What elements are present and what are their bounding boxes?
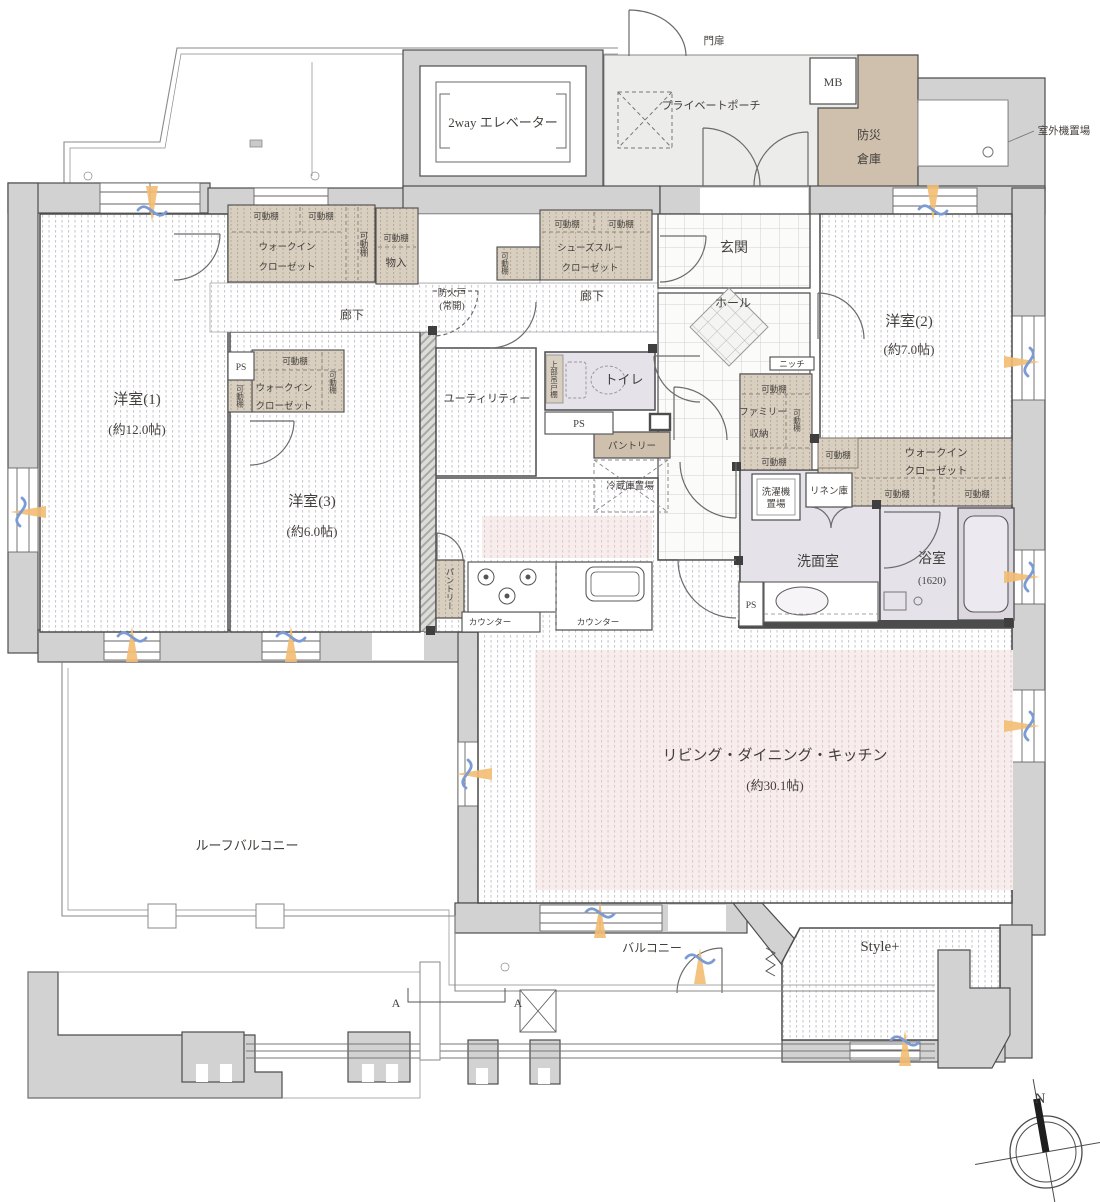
balcony-label: バルコニー	[622, 941, 682, 955]
bath-label: 浴室	[918, 550, 946, 567]
kitchen-pink-zone	[482, 516, 652, 558]
counter-label-2: カウンター	[577, 617, 620, 627]
genkan-label: 玄関	[720, 239, 748, 256]
ps-label-3: PS	[746, 601, 757, 611]
bedroom2-size: (約7.0帖)	[884, 342, 935, 357]
washroom-label: 洗面室	[797, 553, 839, 570]
stove	[468, 562, 556, 612]
wic1-label-1: ウォークイン	[258, 242, 315, 253]
upper-cabinet-label: 上部吊戸棚	[549, 360, 558, 399]
mb-label: MB	[824, 75, 843, 89]
hall-label: ホール	[715, 296, 751, 310]
shelf-label: 可動棚	[884, 489, 910, 499]
family-label-1: ファミリー	[739, 408, 787, 418]
fridge-label: 冷蔵庫置場	[606, 480, 654, 492]
monoire-closet	[376, 208, 418, 284]
shelf-label: 可動棚	[253, 211, 279, 221]
bedroom3-label: 洋室(3)	[288, 493, 336, 510]
north-label: N	[1035, 1091, 1046, 1107]
shelf-label: 可動棚	[825, 450, 851, 460]
shelf-label-v: 可動棚	[235, 384, 244, 408]
shelf-label: 可動棚	[761, 384, 787, 394]
laundry-label-2: 置場	[766, 498, 786, 510]
gate-label: 門扉	[704, 34, 725, 47]
room-utility-floor	[436, 348, 536, 476]
utility-label: ユーティリティー	[444, 393, 531, 405]
wic1-label-2: クローゼット	[258, 261, 315, 273]
shelf-label: 可動棚	[282, 356, 308, 366]
shelf-label-v: 可動棚	[500, 251, 509, 275]
pantry-kitchen-label: パントリー	[445, 568, 455, 611]
floor-plan: 門扉 2way エレベーター プライベートポーチ MB 防災 倉庫 室外機置場 …	[0, 0, 1100, 1202]
outdoor-unit-area	[918, 100, 1008, 166]
toilet-label: トイレ	[604, 372, 643, 387]
shelf-label: 可動棚	[308, 211, 334, 221]
corridor-label-2: 廊下	[580, 288, 604, 303]
ldk-size: (約30.1帖)	[746, 778, 803, 793]
shelf-label: 可動棚	[761, 457, 787, 467]
compass	[962, 1067, 1100, 1202]
shelf-label: 可動棚	[383, 233, 409, 243]
outdoor-unit-label: 室外機置場	[1038, 124, 1091, 137]
bedroom1-size: (約12.0帖)	[108, 422, 165, 437]
wic3-label-1: ウォークイン	[255, 383, 312, 394]
shelf-label: 可動棚	[964, 489, 990, 499]
kitchen-west-wall	[420, 332, 436, 632]
corridor-label-1: 廊下	[340, 307, 364, 322]
niche-label: ニッチ	[779, 359, 805, 369]
wic2-label-1: ウォークイン	[905, 447, 968, 459]
disaster-label-2: 倉庫	[857, 151, 881, 166]
shoes-label-1: シューズスルー	[557, 242, 623, 254]
door-spring	[766, 948, 775, 976]
disaster-label-1: 防災	[857, 127, 881, 142]
wic2-label-2: クローゼット	[905, 465, 968, 477]
fire-door-label-1: 防火戸	[438, 287, 467, 299]
shelf-label: 可動棚	[608, 219, 634, 229]
porch-label: プライベートポーチ	[662, 99, 761, 112]
shelf-label: 可動棚	[554, 219, 580, 229]
family-label-2: 収納	[749, 428, 768, 440]
shelf-label-v: 可動棚	[328, 370, 337, 394]
ps-label-2: PS	[573, 419, 585, 430]
balcony-hatch-box	[520, 990, 556, 1032]
vanity-fixture	[764, 582, 878, 622]
bath-size: (1620)	[918, 576, 946, 587]
floor-plan-svg: 門扉 2way エレベーター プライベートポーチ MB 防災 倉庫 室外機置場 …	[0, 0, 1100, 1202]
genkan-step	[658, 288, 810, 293]
ldk-pink-zone	[535, 650, 1013, 890]
fire-door-label-2: (常開)	[439, 300, 464, 312]
bedroom3-size: (約6.0帖)	[287, 524, 338, 539]
section-a-right: A	[514, 996, 523, 1010]
linen-label: リネン庫	[810, 485, 849, 497]
ldk-label: リビング・ダイニング・キッチン	[662, 747, 887, 764]
section-a-left: A	[392, 996, 401, 1010]
wic3-label-2: クローゼット	[255, 400, 312, 412]
shelf-label-v: 可動棚	[359, 231, 369, 257]
roof-balcony-label: ルーフバルコニー	[196, 838, 299, 853]
shelf-label-v: 可動棚	[792, 408, 801, 432]
pantry-hall-label: パントリー	[608, 441, 656, 452]
styleplus-label: Style+	[860, 939, 899, 955]
door-gate	[629, 10, 686, 56]
bedroom1-label: 洋室(1)	[113, 391, 161, 408]
monoire-label: 物入	[386, 256, 407, 269]
laundry-label-1: 洗濯機	[762, 486, 791, 498]
elevator-label: 2way エレベーター	[448, 115, 557, 130]
shaft-box	[420, 962, 440, 1060]
bedroom2-label: 洋室(2)	[885, 313, 933, 330]
ps-label-1: PS	[236, 363, 247, 373]
counter-label-1: カウンター	[469, 617, 512, 627]
shoes-label-2: クローゼット	[561, 262, 618, 274]
